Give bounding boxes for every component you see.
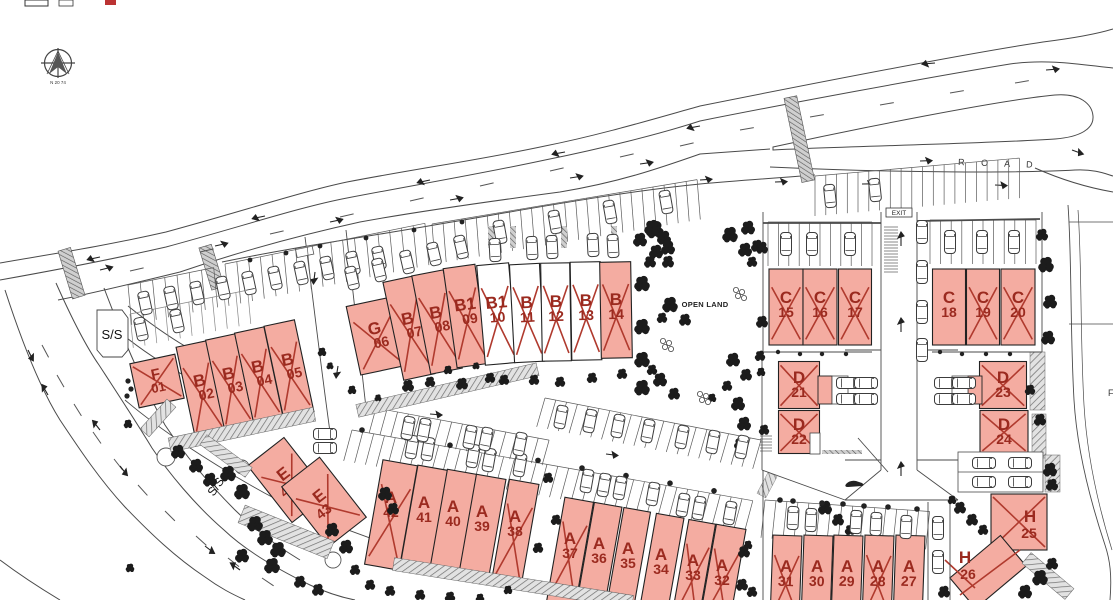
svg-text:38: 38: [507, 523, 523, 539]
svg-text:40: 40: [445, 513, 461, 529]
svg-text:21: 21: [791, 384, 807, 400]
svg-text:23: 23: [995, 384, 1011, 400]
svg-text:15: 15: [778, 304, 794, 320]
svg-text:19: 19: [975, 304, 991, 320]
svg-text:08: 08: [433, 317, 452, 336]
svg-text:22: 22: [791, 431, 807, 447]
svg-text:33: 33: [685, 567, 701, 583]
svg-text:36: 36: [591, 550, 607, 566]
svg-text:27: 27: [901, 573, 917, 590]
svg-text:10: 10: [489, 308, 506, 325]
svg-text:09: 09: [461, 309, 479, 327]
svg-text:34: 34: [653, 561, 669, 577]
svg-text:28: 28: [870, 573, 886, 590]
svg-text:24: 24: [996, 431, 1012, 447]
svg-text:31: 31: [778, 573, 794, 590]
svg-text:EXIT: EXIT: [892, 210, 906, 217]
svg-text:13: 13: [578, 307, 594, 323]
svg-text:H: H: [1024, 507, 1036, 526]
svg-text:01: 01: [150, 379, 167, 397]
svg-text:H: H: [959, 548, 971, 567]
svg-text:18: 18: [941, 304, 957, 320]
svg-text:37: 37: [562, 545, 578, 561]
svg-text:11: 11: [520, 309, 536, 326]
svg-text:14: 14: [608, 306, 624, 322]
svg-text:16: 16: [812, 304, 828, 320]
svg-text:30: 30: [809, 573, 825, 590]
svg-text:S/S: S/S: [102, 327, 123, 342]
svg-text:32: 32: [714, 572, 730, 588]
svg-text:F: F: [1108, 388, 1113, 398]
svg-text:20: 20: [1010, 304, 1026, 320]
svg-text:29: 29: [839, 573, 855, 590]
svg-text:39: 39: [474, 518, 490, 534]
svg-text:N 20 74: N 20 74: [50, 80, 66, 85]
svg-text:25: 25: [1021, 525, 1037, 541]
svg-text:12: 12: [548, 308, 564, 324]
svg-text:41: 41: [416, 509, 432, 525]
svg-text:35: 35: [620, 555, 636, 571]
svg-text:17: 17: [847, 304, 863, 320]
svg-text:26: 26: [960, 566, 976, 582]
svg-text:OPEN LAND: OPEN LAND: [682, 300, 729, 309]
